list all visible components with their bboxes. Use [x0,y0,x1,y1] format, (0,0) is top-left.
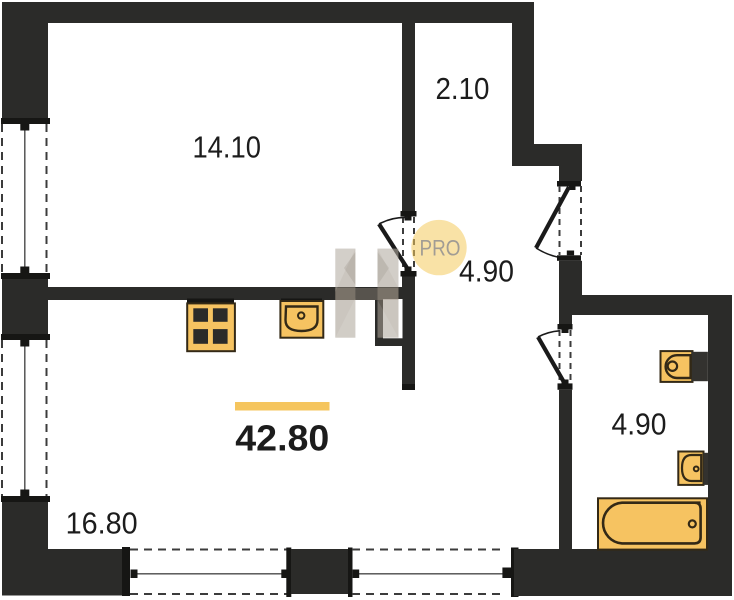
svg-text:2.10: 2.10 [436,72,490,106]
svg-text:14.10: 14.10 [192,131,261,165]
svg-text:4.90: 4.90 [612,408,667,442]
svg-text:PRO: PRO [420,236,461,261]
svg-text:42.80: 42.80 [235,418,329,459]
svg-text:4.90: 4.90 [459,255,514,289]
svg-text:16.80: 16.80 [66,507,138,541]
